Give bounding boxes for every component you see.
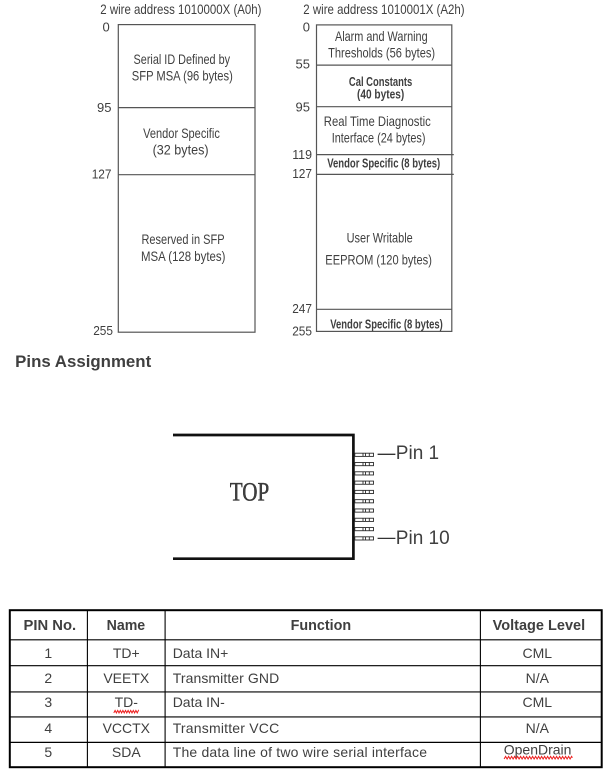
svg-text:Name: Name: [107, 617, 146, 634]
svg-text:Transmitter GND: Transmitter GND: [173, 670, 280, 686]
svg-text:Vendor Specific: Vendor Specific: [143, 125, 220, 141]
svg-text:The data line of two wire seri: The data line of two wire serial interfa…: [173, 744, 428, 760]
svg-text:4: 4: [44, 720, 52, 736]
svg-text:N/A: N/A: [526, 670, 550, 686]
svg-text:Voltage Level: Voltage Level: [493, 617, 586, 634]
svg-text:EEPROM (120 bytes): EEPROM (120 bytes): [325, 252, 432, 268]
svg-text:2: 2: [44, 670, 52, 686]
svg-text:(40 bytes): (40 bytes): [357, 86, 404, 101]
svg-text:VCCTX: VCCTX: [103, 720, 151, 736]
svg-text:CML: CML: [523, 645, 553, 661]
svg-text:1: 1: [44, 645, 52, 661]
svg-text:119: 119: [292, 147, 312, 162]
svg-text:Data IN-: Data IN-: [173, 694, 225, 710]
svg-text:Data IN+: Data IN+: [173, 645, 229, 661]
svg-text:127: 127: [92, 167, 112, 182]
svg-text:95: 95: [97, 100, 111, 115]
svg-text:Pin 1: Pin 1: [396, 443, 439, 464]
svg-text:0: 0: [303, 20, 310, 35]
svg-text:TOP: TOP: [230, 478, 270, 507]
svg-text:Pins Assignment: Pins Assignment: [15, 353, 152, 371]
svg-text:Real Time Diagnostic: Real Time Diagnostic: [324, 113, 431, 129]
svg-text:Reserved in SFP: Reserved in SFP: [141, 231, 224, 247]
svg-text:(32 bytes): (32 bytes): [153, 142, 209, 158]
svg-text:Vendor Specific (8 bytes): Vendor Specific (8 bytes): [330, 316, 443, 331]
svg-text:3: 3: [44, 694, 52, 710]
svg-text:55: 55: [296, 57, 310, 72]
svg-text:255: 255: [93, 323, 113, 338]
svg-text:255: 255: [292, 323, 312, 338]
svg-text:2 wire address 1010001X (A2h): 2 wire address 1010001X (A2h): [303, 1, 464, 17]
svg-text:N/A: N/A: [526, 720, 550, 736]
svg-text:247: 247: [292, 301, 312, 316]
svg-text:95: 95: [296, 100, 310, 115]
svg-text:Function: Function: [291, 617, 352, 634]
svg-text:Alarm and Warning: Alarm and Warning: [335, 28, 428, 44]
svg-text:PIN No.: PIN No.: [24, 617, 77, 634]
svg-text:CML: CML: [523, 694, 553, 710]
svg-text:SDA: SDA: [112, 744, 141, 760]
svg-text:Transmitter VCC: Transmitter VCC: [173, 720, 280, 736]
svg-text:Thresholds (56 bytes): Thresholds (56 bytes): [328, 45, 435, 61]
svg-text:SFP MSA (96 bytes): SFP MSA (96 bytes): [132, 68, 233, 84]
svg-text:VEETX: VEETX: [103, 670, 150, 686]
svg-text:Interface (24 bytes): Interface (24 bytes): [332, 130, 426, 146]
svg-text:OpenDrain: OpenDrain: [504, 742, 572, 758]
svg-text:2 wire address 1010000X (A0h): 2 wire address 1010000X (A0h): [100, 1, 261, 17]
svg-text:TD-: TD-: [115, 694, 139, 710]
svg-text:User Writable: User Writable: [347, 230, 413, 246]
svg-text:127: 127: [292, 166, 312, 181]
svg-text:Serial ID Defined by: Serial ID Defined by: [134, 51, 231, 67]
svg-text:Vendor Specific (8 bytes): Vendor Specific (8 bytes): [327, 155, 440, 170]
svg-text:Pin 10: Pin 10: [396, 528, 450, 549]
svg-text:0: 0: [102, 20, 109, 35]
svg-text:5: 5: [44, 744, 52, 760]
svg-text:MSA (128 bytes): MSA (128 bytes): [141, 248, 225, 264]
svg-text:TD+: TD+: [113, 645, 140, 661]
